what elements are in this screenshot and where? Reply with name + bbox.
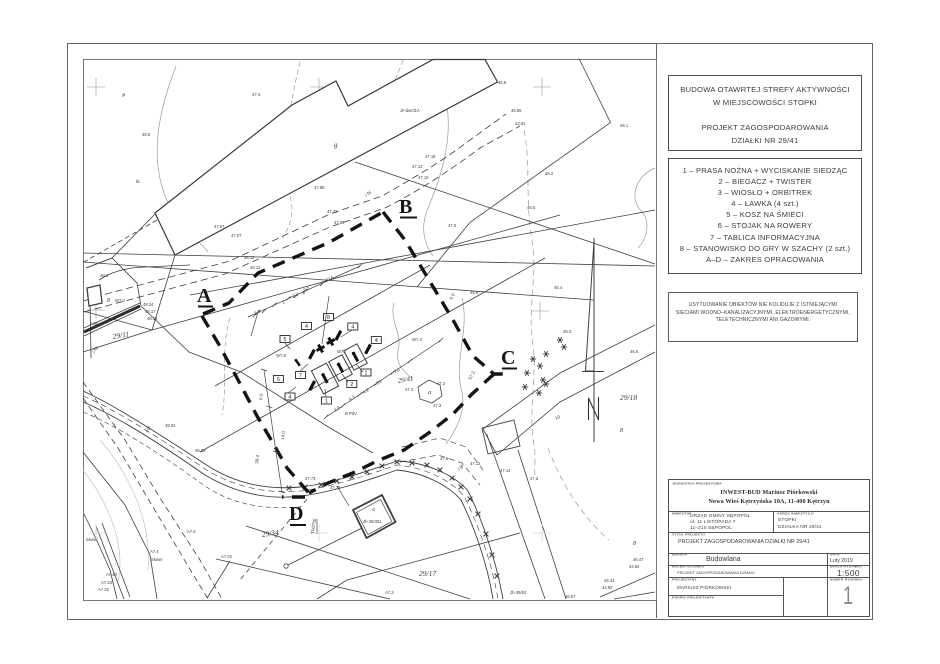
svg-text:48.02: 48.02 bbox=[165, 423, 176, 428]
svg-text:10.6: 10.6 bbox=[324, 274, 335, 282]
svg-text:A: A bbox=[197, 285, 212, 307]
svg-text:A7.40: A7.40 bbox=[106, 572, 118, 577]
svg-text:g: g bbox=[334, 141, 338, 149]
svg-text:46.2: 46.2 bbox=[545, 171, 554, 176]
svg-text:a: a bbox=[428, 389, 431, 396]
svg-text:j.bł.: j.bł. bbox=[363, 189, 372, 197]
svg-text:A7.4: A7.4 bbox=[150, 549, 159, 554]
svg-text:47.88: 47.88 bbox=[314, 185, 325, 190]
svg-text:7: 7 bbox=[299, 373, 302, 379]
svg-text:Skwer: Skwer bbox=[86, 537, 98, 542]
svg-text:43.61: 43.61 bbox=[515, 121, 526, 126]
svg-text:47.69: 47.69 bbox=[334, 220, 345, 225]
svg-text:46.3: 46.3 bbox=[563, 329, 572, 334]
svg-text:5: 5 bbox=[284, 337, 287, 343]
svg-text:44.62: 44.62 bbox=[629, 564, 640, 569]
svg-text:8: 8 bbox=[327, 315, 330, 321]
svg-text:38.4: 38.4 bbox=[254, 454, 260, 464]
svg-text:Jh-39/53: Jh-39/53 bbox=[510, 590, 527, 595]
svg-text:2.0: 2.0 bbox=[253, 309, 261, 316]
svg-text:47.16: 47.16 bbox=[425, 154, 436, 159]
svg-text:47.3: 47.3 bbox=[433, 403, 442, 408]
svg-text:A7.3: A7.3 bbox=[385, 590, 394, 595]
svg-text:48.17: 48.17 bbox=[145, 309, 156, 314]
svg-text:j.kp.: j.kp. bbox=[90, 344, 99, 354]
svg-text:47.14: 47.14 bbox=[500, 468, 511, 473]
svg-text:D: D bbox=[289, 503, 303, 525]
svg-text:T00750: T00750 bbox=[310, 518, 317, 534]
svg-text:47.72: 47.72 bbox=[327, 209, 338, 214]
svg-text:46.8: 46.8 bbox=[498, 80, 507, 85]
svg-text:1: 1 bbox=[325, 399, 328, 405]
svg-text:48.24: 48.24 bbox=[143, 302, 154, 307]
svg-text:2.2: 2.2 bbox=[291, 292, 299, 299]
svg-text:44.82: 44.82 bbox=[602, 585, 613, 590]
svg-text:4: 4 bbox=[305, 324, 308, 330]
svg-text:46.93: 46.93 bbox=[195, 448, 206, 453]
svg-text:46.47: 46.47 bbox=[633, 557, 644, 562]
svg-text:46.5: 46.5 bbox=[527, 205, 536, 210]
svg-text:4.3: 4.3 bbox=[348, 394, 356, 402]
svg-text:29/11: 29/11 bbox=[112, 330, 130, 341]
svg-text:4: 4 bbox=[289, 395, 292, 401]
svg-text:8: 8 bbox=[107, 298, 110, 304]
svg-text:29/17: 29/17 bbox=[419, 569, 436, 578]
svg-text:3.1: 3.1 bbox=[375, 378, 383, 386]
svg-text:19: 19 bbox=[554, 414, 561, 421]
svg-text:48.12: 48.12 bbox=[244, 255, 255, 260]
svg-text:6: 6 bbox=[277, 377, 280, 383]
svg-text:47.2: 47.2 bbox=[437, 381, 446, 386]
svg-text:47.07: 47.07 bbox=[214, 224, 225, 229]
svg-text:29/34: 29/34 bbox=[261, 528, 279, 539]
svg-text:29/41: 29/41 bbox=[397, 375, 414, 385]
svg-text:Jh-39/361: Jh-39/361 bbox=[363, 519, 382, 524]
svg-text:48.5: 48.5 bbox=[142, 132, 151, 137]
svg-text:46.8: 46.8 bbox=[470, 290, 479, 295]
svg-text:C: C bbox=[501, 347, 515, 369]
svg-text:Skwer: Skwer bbox=[151, 557, 163, 562]
svg-text:6.0: 6.0 bbox=[258, 393, 264, 400]
svg-text:47.2: 47.2 bbox=[405, 387, 414, 392]
svg-text:W7.7: W7.7 bbox=[337, 349, 347, 354]
svg-text:47.12: 47.12 bbox=[470, 461, 481, 466]
svg-text:Jh-dw/31A: Jh-dw/31A bbox=[400, 108, 420, 113]
svg-text:2: 2 bbox=[350, 382, 353, 388]
svg-text:1: 1 bbox=[365, 371, 368, 377]
svg-text:48.1: 48.1 bbox=[100, 273, 109, 278]
svg-text:47.0: 47.0 bbox=[448, 223, 457, 228]
svg-text:bł.: bł. bbox=[136, 179, 140, 184]
svg-text:G: G bbox=[372, 507, 375, 512]
svg-text:46.6: 46.6 bbox=[630, 349, 639, 354]
svg-text:6.0: 6.0 bbox=[448, 292, 456, 300]
svg-text:B PdV: B PdV bbox=[345, 411, 357, 416]
svg-text:B: B bbox=[399, 196, 412, 218]
svg-text:4: 4 bbox=[375, 338, 378, 344]
svg-text:46.66: 46.66 bbox=[511, 108, 522, 113]
svg-text:47.13: 47.13 bbox=[412, 164, 423, 169]
svg-text:A7.32: A7.32 bbox=[98, 587, 110, 592]
svg-text:14.0: 14.0 bbox=[280, 430, 286, 440]
svg-text:47.73: 47.73 bbox=[305, 476, 316, 481]
svg-text:47.78: 47.78 bbox=[330, 485, 341, 490]
svg-text:2.2: 2.2 bbox=[302, 286, 310, 293]
svg-text:7.0: 7.0 bbox=[393, 367, 401, 375]
svg-text:57.3: 57.3 bbox=[467, 370, 476, 381]
svg-text:46.57: 46.57 bbox=[565, 594, 576, 599]
svg-text:46.43: 46.43 bbox=[604, 578, 615, 583]
svg-text:W7.9: W7.9 bbox=[276, 353, 286, 358]
svg-text:8: 8 bbox=[620, 428, 623, 434]
svg-text:3.2: 3.2 bbox=[333, 405, 341, 413]
svg-text:W7.4: W7.4 bbox=[412, 337, 422, 342]
svg-text:29/18: 29/18 bbox=[620, 393, 637, 402]
svg-text:47.3: 47.3 bbox=[530, 476, 539, 481]
svg-text:A7.5: A7.5 bbox=[187, 529, 196, 534]
svg-text:47.4: 47.4 bbox=[252, 92, 261, 97]
svg-text:46.4: 46.4 bbox=[554, 285, 563, 290]
svg-text:48.14: 48.14 bbox=[147, 316, 158, 321]
svg-text:j.gr.: j.gr. bbox=[456, 462, 466, 471]
svg-text:8: 8 bbox=[633, 541, 636, 547]
svg-text:W7.0: W7.0 bbox=[115, 298, 125, 303]
svg-text:A7.02: A7.02 bbox=[221, 554, 233, 559]
svg-text:0.50: 0.50 bbox=[90, 321, 99, 326]
svg-text:A7.33: A7.33 bbox=[101, 580, 113, 585]
svg-text:47.6: 47.6 bbox=[440, 456, 449, 461]
svg-text:46.1: 46.1 bbox=[620, 123, 629, 128]
svg-text:48.12: 48.12 bbox=[250, 265, 261, 270]
svg-text:47.10: 47.10 bbox=[418, 175, 429, 180]
svg-text:#: # bbox=[122, 93, 126, 99]
svg-text:47.07: 47.07 bbox=[231, 233, 242, 238]
